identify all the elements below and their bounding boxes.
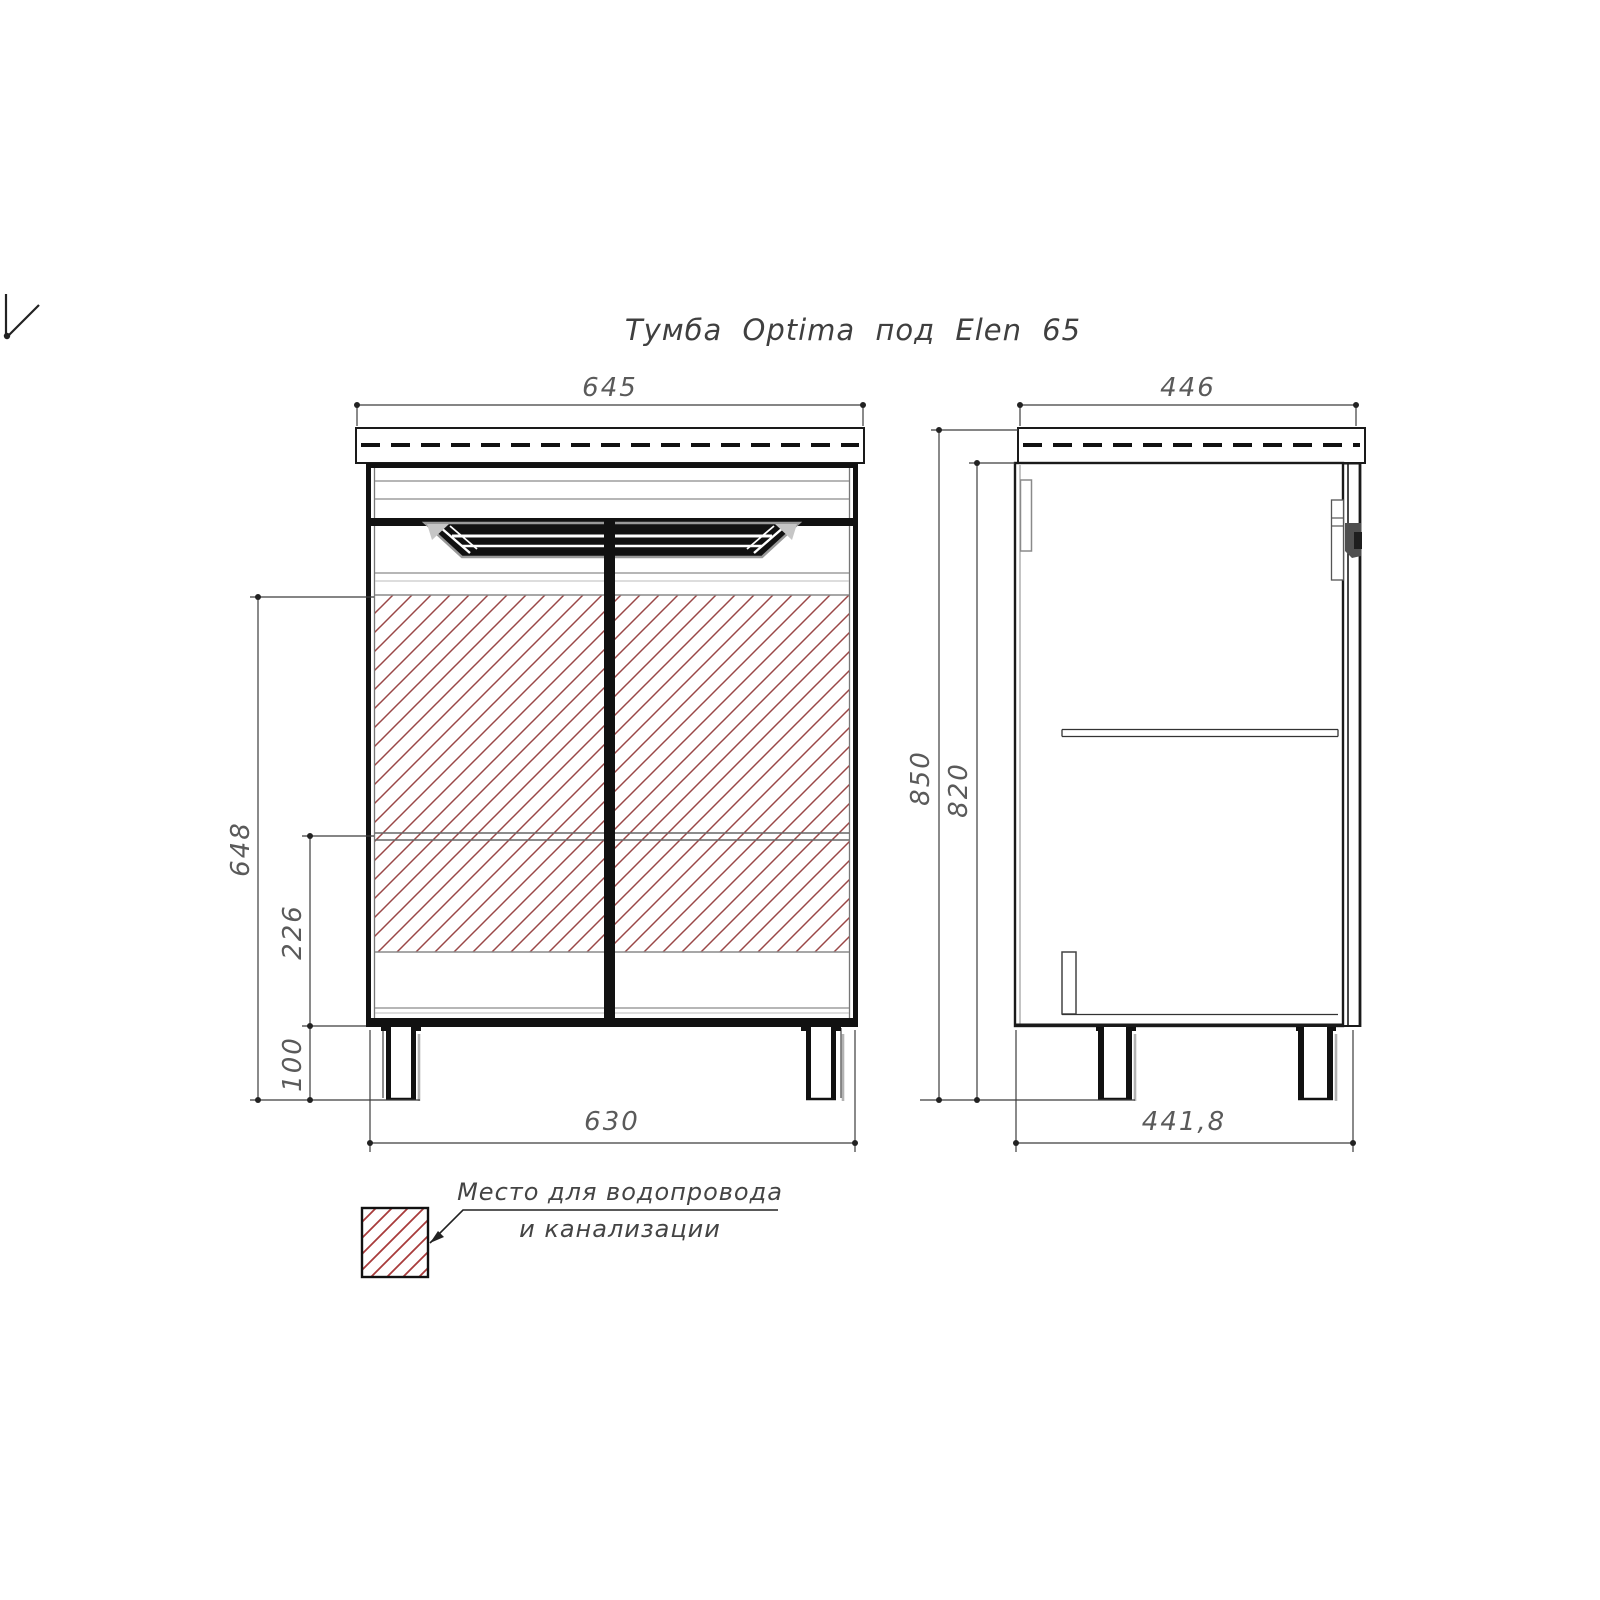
side-countertop [1018,428,1365,463]
dim-label-648: 648 [227,789,255,909]
legend-leader-arrow [430,1231,444,1243]
legend-label-line1: Место для водопровода [455,1179,785,1205]
back-mounting-plate [1021,480,1032,551]
front-cabinet-body [366,463,858,1027]
legend-hatch-swatch [362,1208,428,1277]
dim-label-100: 100 [279,1004,307,1124]
dim-label-446: 446 [1138,374,1238,403]
drawing-title: Тумба Optima под Elen 65 [603,315,1103,347]
dim-side-top-depth [1017,402,1359,426]
drawing-sheet: Тумба Optima под Elen 65 645 446 630 441… [0,0,1600,1600]
front-right-leg [801,1027,843,1101]
corner-check-mark [4,294,39,339]
dim-label-441-8: 441,8 [1124,1108,1244,1137]
side-back-leg [1096,1027,1136,1101]
side-front-leg [1296,1027,1336,1101]
bottom-bracket [1062,952,1076,1014]
front-view [250,402,866,1152]
door-gap-divider [604,518,615,1018]
dim-label-630: 630 [562,1108,662,1137]
dim-label-226: 226 [279,872,307,992]
dim-label-850: 850 [907,718,935,838]
dim-front-top-width [354,402,866,426]
dim-label-820: 820 [945,730,973,850]
door-hinge [1331,500,1362,580]
legend-label-line2: и канализации [455,1216,785,1242]
side-cabinet-body [1015,463,1362,1027]
front-left-leg [381,1027,421,1101]
dim-label-645: 645 [560,374,660,403]
front-countertop [356,428,864,463]
side-view [920,402,1365,1152]
